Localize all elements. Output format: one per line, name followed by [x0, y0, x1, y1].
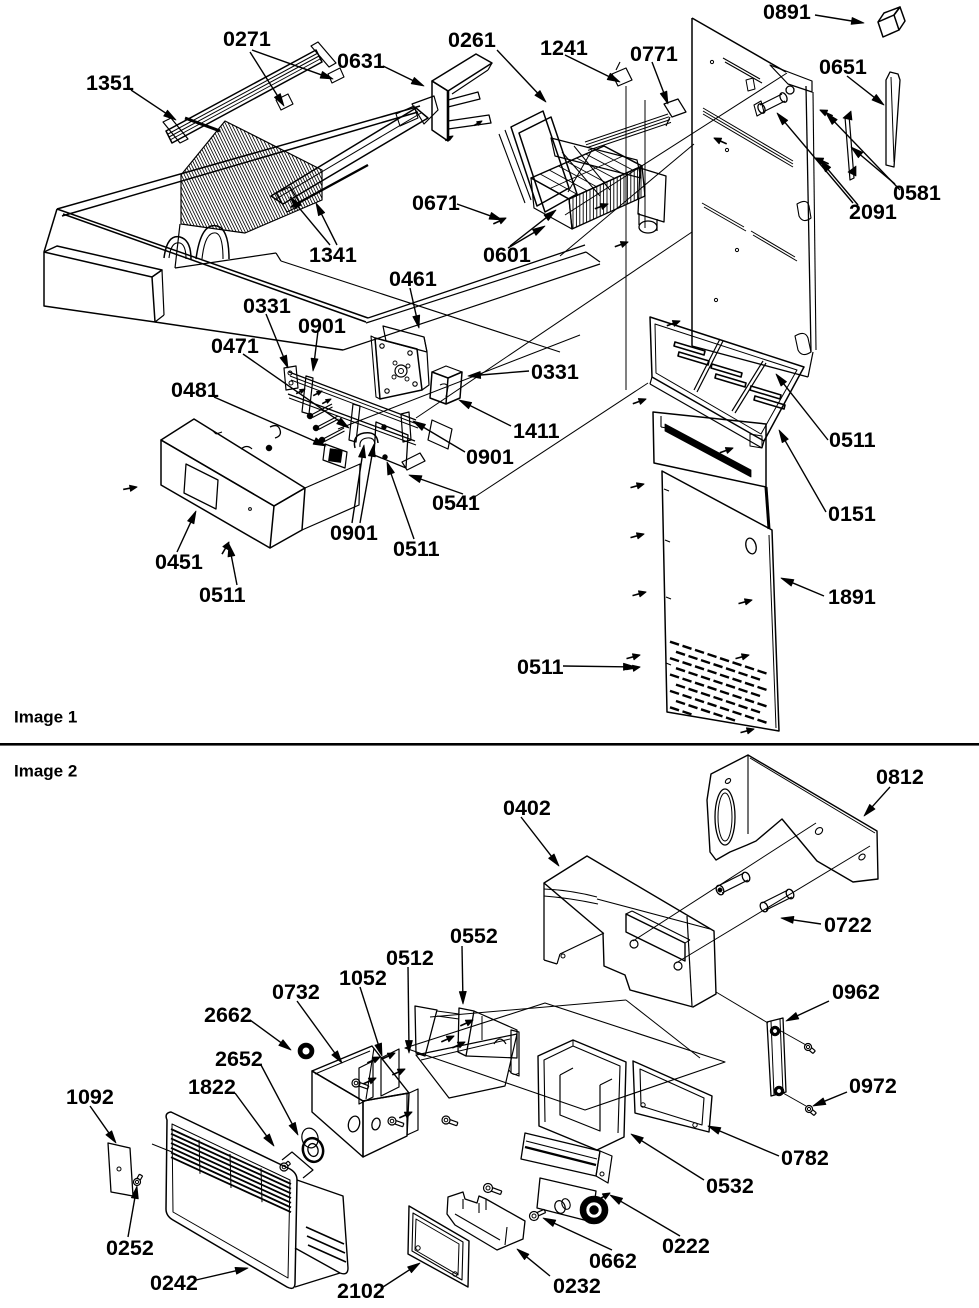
svg-text:0901: 0901 [330, 521, 378, 545]
svg-text:Image 1: Image 1 [14, 708, 77, 727]
svg-text:0662: 0662 [589, 1249, 637, 1273]
svg-text:0331: 0331 [531, 360, 579, 384]
svg-text:1092: 1092 [66, 1085, 114, 1109]
svg-text:0261: 0261 [448, 28, 496, 52]
svg-text:0901: 0901 [298, 314, 346, 338]
svg-text:0651: 0651 [819, 55, 867, 79]
svg-text:0782: 0782 [781, 1146, 829, 1170]
svg-text:0331: 0331 [243, 294, 291, 318]
svg-text:0222: 0222 [662, 1234, 710, 1258]
svg-text:0722: 0722 [824, 913, 872, 937]
svg-text:0812: 0812 [876, 765, 924, 789]
svg-text:0552: 0552 [450, 924, 498, 948]
svg-text:1241: 1241 [540, 36, 588, 60]
svg-text:0252: 0252 [106, 1236, 154, 1260]
svg-text:0541: 0541 [432, 491, 480, 515]
svg-text:0242: 0242 [150, 1271, 198, 1295]
svg-text:1351: 1351 [86, 71, 134, 95]
svg-text:1411: 1411 [513, 419, 560, 443]
svg-text:0631: 0631 [337, 49, 385, 73]
svg-text:1891: 1891 [828, 585, 876, 609]
svg-text:0271: 0271 [223, 27, 271, 51]
svg-text:0671: 0671 [412, 191, 460, 215]
svg-text:1822: 1822 [188, 1075, 236, 1099]
svg-text:0962: 0962 [832, 980, 880, 1004]
svg-text:0532: 0532 [706, 1174, 754, 1198]
svg-text:0471: 0471 [211, 334, 259, 358]
svg-text:1052: 1052 [339, 966, 387, 990]
svg-text:0512: 0512 [386, 946, 434, 970]
svg-text:0511: 0511 [199, 583, 246, 607]
svg-text:Image 2: Image 2 [14, 762, 77, 781]
svg-text:2662: 2662 [204, 1003, 252, 1027]
svg-text:0601: 0601 [483, 243, 531, 267]
svg-text:0232: 0232 [553, 1274, 601, 1298]
svg-text:2102: 2102 [337, 1279, 385, 1303]
svg-text:0511: 0511 [517, 655, 564, 679]
svg-text:0451: 0451 [155, 550, 203, 574]
svg-text:0771: 0771 [630, 42, 678, 66]
svg-text:0732: 0732 [272, 980, 320, 1004]
svg-text:0511: 0511 [829, 428, 876, 452]
svg-text:0891: 0891 [763, 0, 811, 24]
svg-text:1341: 1341 [309, 243, 357, 267]
svg-text:0402: 0402 [503, 796, 551, 820]
svg-text:0901: 0901 [466, 445, 514, 469]
svg-text:0581: 0581 [893, 181, 941, 205]
svg-text:0972: 0972 [849, 1074, 897, 1098]
svg-text:2652: 2652 [215, 1047, 263, 1071]
svg-text:0151: 0151 [828, 502, 876, 526]
svg-text:0511: 0511 [393, 537, 440, 561]
svg-text:0461: 0461 [389, 267, 437, 291]
svg-text:0481: 0481 [171, 378, 219, 402]
